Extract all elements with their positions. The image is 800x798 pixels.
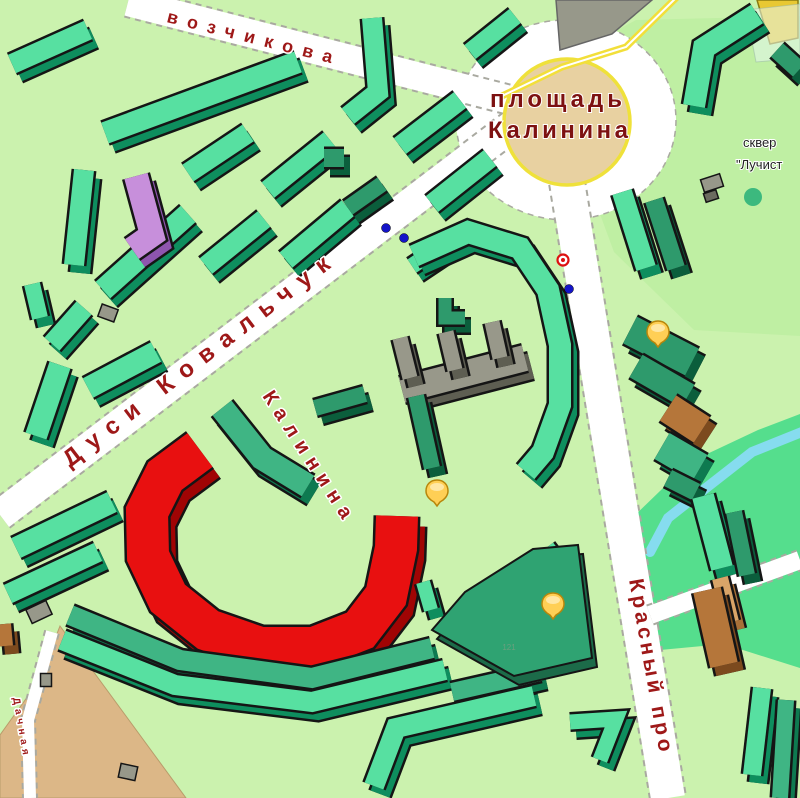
building[interactable] (662, 446, 706, 476)
tree (744, 188, 762, 206)
transit-stop-dot[interactable] (400, 234, 409, 243)
building[interactable] (400, 338, 416, 386)
building[interactable] (315, 394, 371, 416)
building[interactable] (752, 688, 768, 783)
plaza-label-line1: площадь (490, 86, 622, 113)
map-canvas[interactable]: возчикова Дуси Ковальчук Калинина Красны… (0, 0, 800, 798)
building[interactable] (32, 284, 46, 326)
building[interactable] (734, 512, 753, 583)
building[interactable] (132, 176, 158, 257)
map-viewport[interactable]: возчикова Дуси Ковальчук Калинина Красны… (0, 0, 800, 798)
small-building[interactable] (118, 763, 138, 780)
building[interactable] (324, 158, 350, 166)
skver-label-line1: сквер (743, 135, 776, 150)
skver-label-line2: "Лучист (736, 157, 782, 172)
map-graphics[interactable] (0, 0, 800, 798)
building[interactable] (446, 332, 461, 378)
building[interactable] (707, 590, 730, 673)
small-building[interactable] (41, 674, 52, 687)
building[interactable] (74, 170, 90, 273)
transit-stop-dot[interactable] (565, 285, 574, 294)
building[interactable] (780, 700, 792, 798)
building-number: 121 (502, 643, 516, 652)
tram-stop-icon[interactable] (558, 255, 569, 266)
building[interactable] (4, 624, 12, 654)
building[interactable] (668, 478, 702, 500)
transit-stop-dot[interactable] (382, 224, 391, 233)
